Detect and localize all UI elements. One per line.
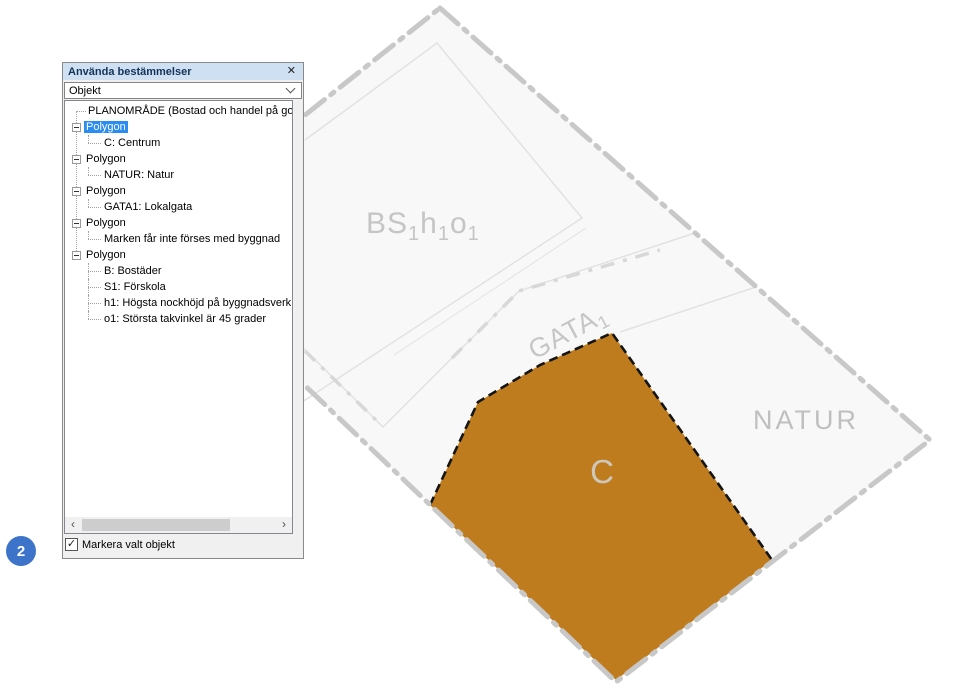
tree-item-polygon[interactable]: Polygon	[65, 247, 292, 263]
scrollbar-thumb[interactable]	[82, 519, 230, 531]
tree-item-planomrade[interactable]: PLANOMRÅDE (Bostad och handel på golfba	[65, 103, 292, 119]
checkbox-checked[interactable]: ✓	[65, 538, 78, 551]
tree-item-b-bostader[interactable]: B: Bostäder	[65, 263, 292, 279]
tree-connector	[88, 135, 101, 151]
tree-connector	[88, 263, 101, 279]
panel-titlebar[interactable]: Använda bestämmelser ✕	[63, 63, 303, 80]
tree-item-polygon[interactable]: Polygon	[65, 183, 292, 199]
regulations-tree: PLANOMRÅDE (Bostad och handel på golfba …	[65, 101, 292, 327]
scroll-left-icon[interactable]: ‹	[65, 517, 81, 533]
tree-item-s1-forskola[interactable]: S1: Förskola	[65, 279, 292, 295]
collapse-icon[interactable]	[72, 155, 81, 164]
collapse-icon[interactable]	[72, 187, 81, 196]
zone-c-label: C	[590, 453, 614, 490]
collapse-icon[interactable]	[72, 219, 81, 228]
regulations-treebox: PLANOMRÅDE (Bostad och handel på golfba …	[64, 100, 293, 534]
tree-connector	[88, 167, 101, 183]
tree-item-gata1[interactable]: GATA1: Lokalgata	[65, 199, 292, 215]
collapse-icon[interactable]	[72, 251, 81, 260]
tree-connector	[88, 295, 101, 311]
panel-title: Använda bestämmelser	[68, 66, 285, 78]
tree-item-o1-takvinkel[interactable]: o1: Största takvinkel är 45 grader	[65, 311, 292, 327]
app-window: BS1h1o1 GATA1 NATUR C Använda bestämmels…	[0, 0, 960, 695]
tree-connector	[88, 231, 101, 247]
tree-item-polygon-selected[interactable]: Polygon	[65, 119, 292, 135]
object-type-value: Objekt	[65, 85, 287, 97]
tree-item-polygon[interactable]: Polygon	[65, 215, 292, 231]
tree-connector	[88, 199, 101, 215]
horizontal-scrollbar[interactable]: ‹ ›	[65, 517, 292, 533]
object-type-select[interactable]: Objekt	[64, 82, 302, 99]
chevron-down-icon	[286, 84, 296, 94]
tree-item-natur[interactable]: NATUR: Natur	[65, 167, 292, 183]
close-icon[interactable]: ✕	[285, 63, 298, 80]
tree-item-polygon[interactable]: Polygon	[65, 151, 292, 167]
tree-item-marken[interactable]: Marken får inte förses med byggnad	[65, 231, 292, 247]
annotation-badge-2: 2	[6, 536, 36, 566]
tree-connector	[88, 279, 101, 295]
zone-bs-label: BS1h1o1	[366, 207, 480, 245]
scroll-right-icon[interactable]: ›	[276, 517, 292, 533]
zone-natur-label: NATUR	[753, 405, 859, 435]
tree-item-h1-nockhojd[interactable]: h1: Högsta nockhöjd på byggnadsverk	[65, 295, 292, 311]
tree-connector	[88, 311, 101, 327]
checkbox-label: Markera valt objekt	[82, 539, 175, 551]
tree-item-c-centrum[interactable]: C: Centrum	[65, 135, 292, 151]
used-regulations-panel: Använda bestämmelser ✕ Objekt PLANOMRÅDE…	[62, 62, 304, 559]
tree-connector	[76, 111, 86, 112]
collapse-icon[interactable]	[72, 123, 81, 132]
highlight-option-row[interactable]: ✓ Markera valt objekt	[65, 538, 175, 551]
